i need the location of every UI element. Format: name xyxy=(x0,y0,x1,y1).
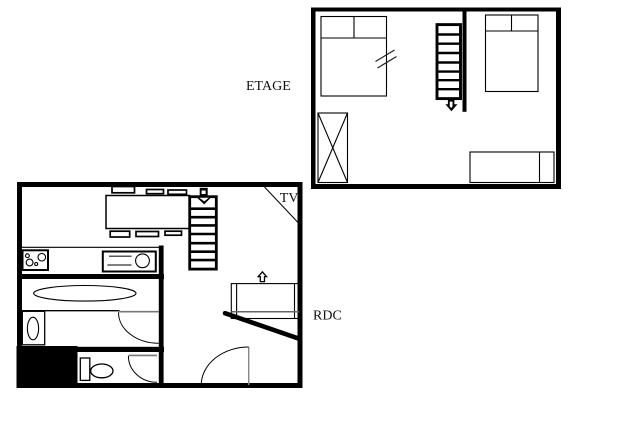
svg-text:ETAGE: ETAGE xyxy=(246,79,291,94)
svg-text:TV: TV xyxy=(280,191,299,206)
svg-text:RDC: RDC xyxy=(313,309,342,324)
